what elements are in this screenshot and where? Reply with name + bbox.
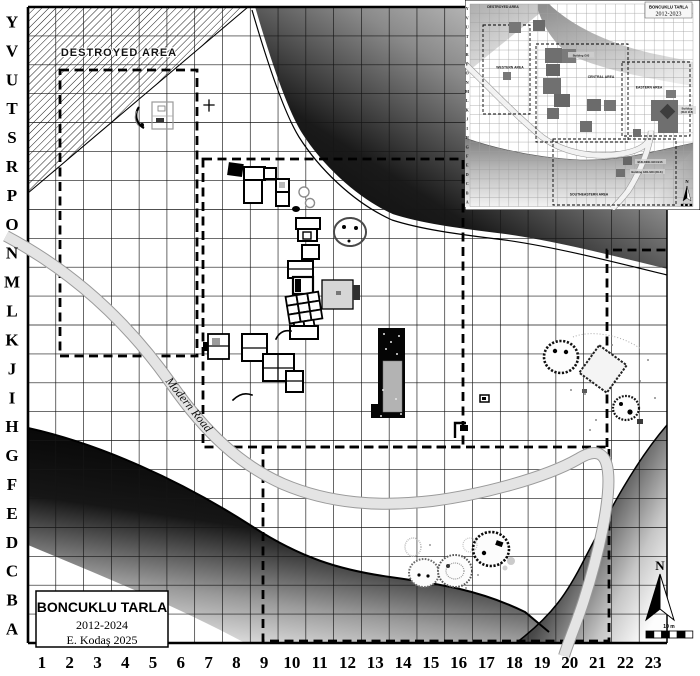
- row-label: M: [4, 273, 20, 292]
- inset-row-label: C: [466, 181, 469, 186]
- inset-row-label: B: [466, 190, 469, 195]
- inset-row-label: M: [465, 89, 469, 94]
- inset-years: 2012-2023: [656, 12, 682, 18]
- row-label: J: [8, 359, 17, 378]
- col-label: 7: [204, 653, 213, 672]
- inset-map: DESTROYED AREA WESTERN AREA CENTRAL AREA…: [465, 0, 700, 210]
- col-label: 14: [395, 653, 413, 672]
- col-label: 1: [38, 653, 47, 672]
- col-label: 22: [617, 653, 634, 672]
- col-label: 18: [506, 653, 523, 672]
- inset-scale-bar: [681, 204, 692, 206]
- col-label: 8: [232, 653, 241, 672]
- col-label: 19: [533, 653, 550, 672]
- inset-row-label: G: [466, 144, 469, 149]
- col-label: 10: [283, 653, 300, 672]
- col-label: 21: [589, 653, 606, 672]
- inset-label-central: CENTRAL AREA: [588, 75, 615, 79]
- inset-row-label: O: [466, 71, 469, 76]
- row-label: I: [9, 388, 16, 407]
- inset-title: BONCUKLU TARLA: [649, 5, 688, 10]
- col-label: 3: [93, 653, 102, 672]
- row-label: H: [5, 417, 18, 436]
- map-credit: E. Kodaş 2025: [67, 633, 138, 647]
- inset-label-southeastern: SOUTHEASTERN AREA: [570, 193, 609, 197]
- col-label: 5: [149, 653, 158, 672]
- inset-label-western: WESTERN AREA: [496, 66, 524, 70]
- inset-title-box: BONCUKLU TARLA 2012-2023: [645, 2, 692, 18]
- inset-row-label: J: [466, 117, 468, 122]
- map-canvas: Modern Road: [0, 0, 700, 676]
- inset-row-label: U: [466, 25, 469, 30]
- row-label: O: [5, 215, 18, 234]
- inset-label-eastern: EASTERN AREA: [636, 86, 663, 90]
- scale-label: 10 m: [663, 624, 675, 630]
- inset-row-label: R: [466, 52, 469, 57]
- inset-label-building-east-2: (DLK B-8): [681, 110, 693, 114]
- row-label: K: [5, 330, 19, 349]
- inset-label-building-central: Building G93: [573, 53, 590, 57]
- map-title: BONCUKLU TARLA: [37, 599, 167, 615]
- inset-row-label: A: [466, 199, 469, 204]
- row-label: A: [6, 620, 19, 639]
- row-label: Y: [6, 12, 18, 31]
- col-label: 23: [645, 653, 662, 672]
- row-label: E: [6, 504, 17, 523]
- col-label: 11: [312, 653, 328, 672]
- col-label: 20: [561, 653, 578, 672]
- inset-row-label: D: [466, 172, 469, 177]
- inset-row-label: E: [466, 163, 469, 168]
- row-label: S: [7, 128, 16, 147]
- inset-label-building-south-1: BUILDING GD4 B16: [638, 160, 663, 164]
- col-label: 17: [478, 653, 496, 672]
- row-label: L: [6, 302, 17, 321]
- col-label: 12: [339, 653, 356, 672]
- row-label: T: [6, 99, 18, 118]
- row-label: B: [6, 591, 17, 610]
- row-label: P: [7, 186, 17, 205]
- col-label: 15: [422, 653, 439, 672]
- row-label: G: [5, 446, 18, 465]
- inset-row-label: Y: [466, 6, 469, 11]
- inset-label-building-south-2: Building GD1-SD4 (DLK): [631, 170, 662, 174]
- map-years: 2012-2024: [76, 618, 128, 632]
- row-label: V: [6, 41, 19, 60]
- col-label: 6: [177, 653, 186, 672]
- row-label: C: [6, 562, 18, 581]
- north-label: N: [655, 558, 665, 573]
- title-box: BONCUKLU TARLA 2012-2024 E. Kodaş 2025: [36, 591, 168, 647]
- site-map-figure: Modern Road: [0, 0, 700, 676]
- col-label: 2: [65, 653, 74, 672]
- col-label: 13: [367, 653, 384, 672]
- inset-row-label: T: [466, 34, 469, 39]
- col-label: 16: [450, 653, 467, 672]
- row-label: R: [6, 157, 19, 176]
- inset-row-label: L: [466, 98, 469, 103]
- row-label: F: [7, 475, 17, 494]
- inset-row-label: N: [466, 80, 469, 85]
- col-label: 4: [121, 653, 130, 672]
- destroyed-area-label: DESTROYED AREA: [61, 47, 177, 59]
- inset-row-label: V: [466, 15, 469, 20]
- row-label: N: [6, 244, 19, 263]
- inset-label-destroyed: DESTROYED AREA: [487, 5, 519, 9]
- row-label: D: [6, 533, 18, 552]
- row-label: U: [6, 70, 18, 89]
- col-label: 9: [260, 653, 269, 672]
